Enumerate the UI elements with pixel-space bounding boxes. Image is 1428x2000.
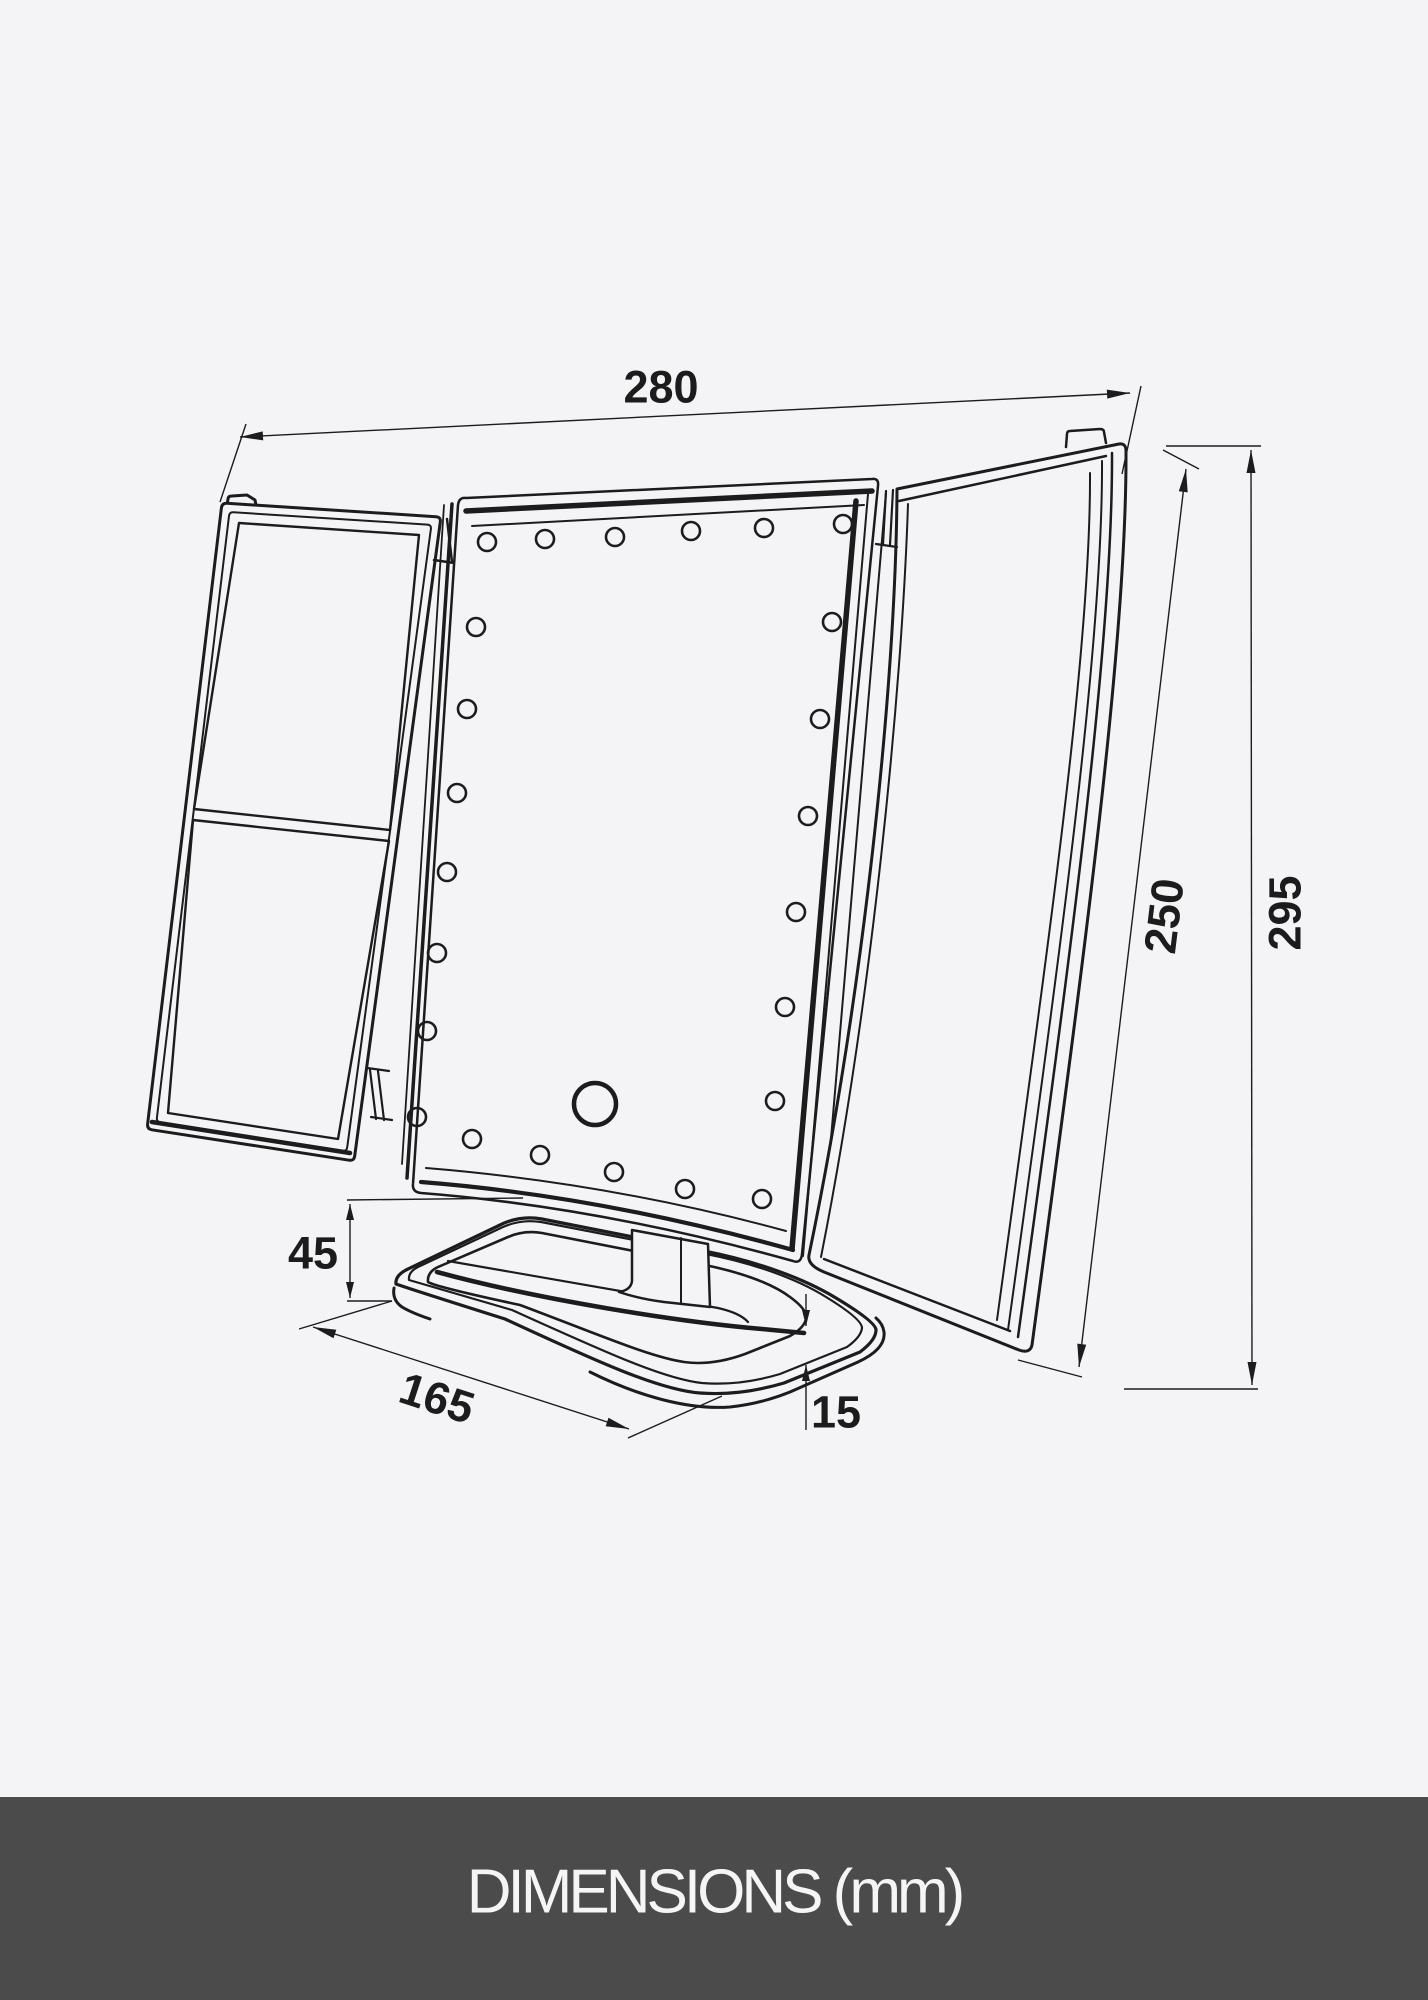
svg-text:280: 280 (623, 362, 698, 413)
svg-text:295: 295 (1260, 875, 1311, 950)
svg-text:250: 250 (1134, 876, 1194, 957)
svg-text:45: 45 (288, 1228, 338, 1279)
svg-text:DIMENSIONS (mm): DIMENSIONS (mm) (467, 1858, 962, 1927)
svg-text:15: 15 (811, 1387, 861, 1438)
